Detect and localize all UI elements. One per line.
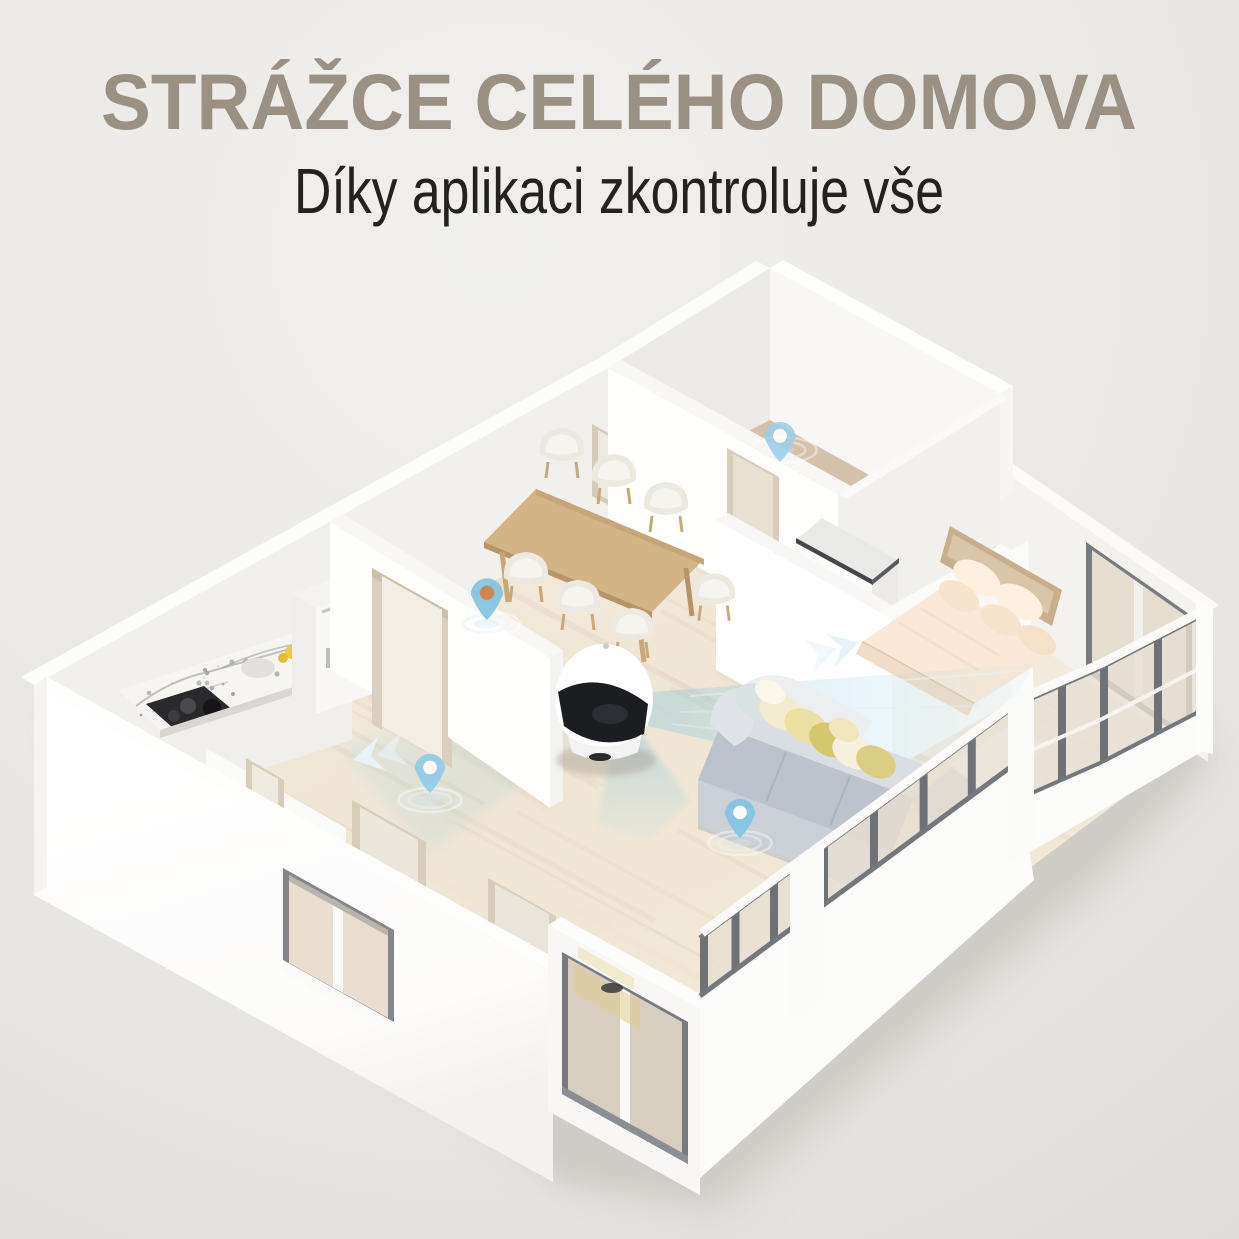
svg-text:STRÁŽCE CELÉHO DOMOVA: STRÁŽCE CELÉHO DOMOVA bbox=[101, 57, 1137, 146]
svg-text:Díky aplikaci zkontroluje vše: Díky aplikaci zkontroluje vše bbox=[294, 155, 944, 227]
